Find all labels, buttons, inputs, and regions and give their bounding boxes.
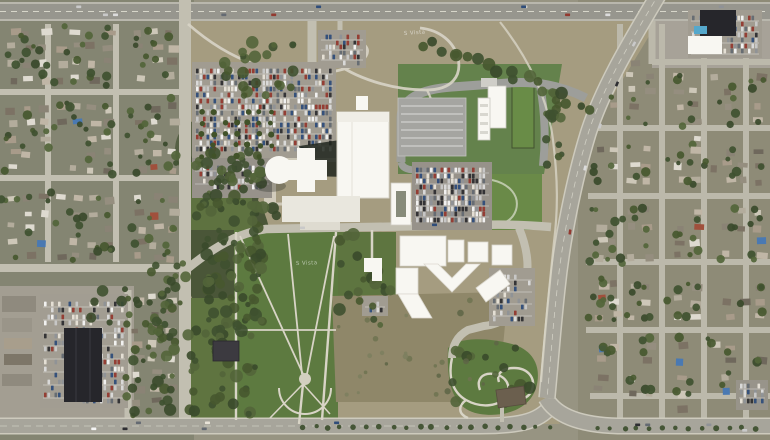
lawn-circle-node bbox=[299, 373, 311, 385]
west-avenue bbox=[179, 0, 191, 424]
rendered-field bbox=[512, 86, 534, 148]
garden-pavilion bbox=[496, 386, 526, 408]
street-label: S Vista bbox=[296, 260, 318, 267]
entry-plaza bbox=[282, 196, 360, 222]
courtyard-building bbox=[391, 183, 411, 225]
aerial-scene: S Vista S Vista bbox=[0, 0, 770, 440]
park-building bbox=[213, 341, 239, 361]
main-hall-building bbox=[337, 112, 389, 198]
pool bbox=[694, 26, 707, 34]
dark-roof-building bbox=[64, 328, 102, 402]
rendered-parking-lot bbox=[398, 98, 466, 156]
satellite-map[interactable]: S Vista S Vista bbox=[0, 0, 770, 440]
